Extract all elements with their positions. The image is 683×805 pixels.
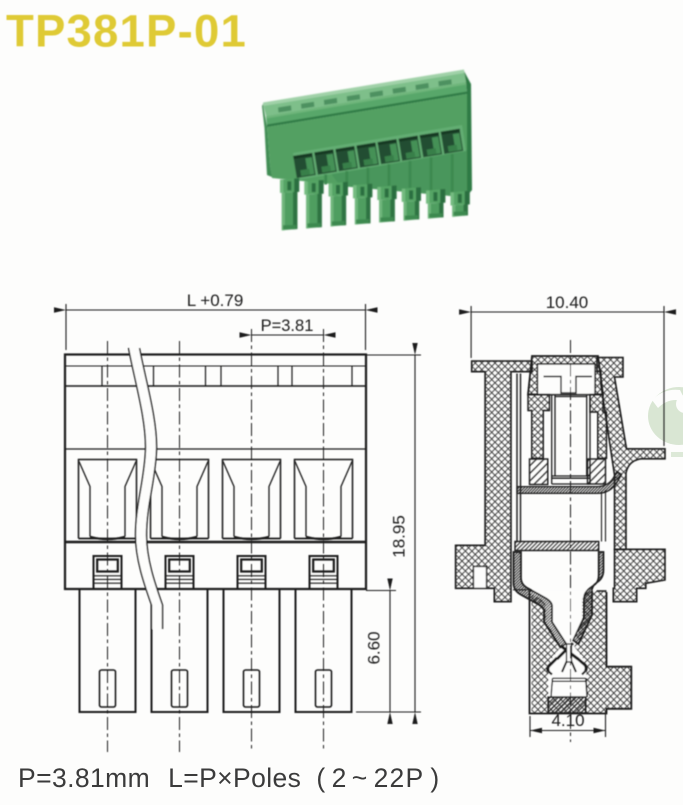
svg-text:TP381P-01: TP381P-01	[6, 6, 247, 57]
svg-text:18.95: 18.95	[390, 515, 409, 558]
svg-text:P=3.81mmL=P×Poles(2~22P): P=3.81mmL=P×Poles(2~22P)	[18, 763, 440, 793]
svg-text:6.60: 6.60	[365, 631, 384, 664]
svg-text:P=3.81: P=3.81	[261, 317, 314, 335]
svg-text:L +0.79: L +0.79	[187, 291, 244, 310]
svg-text:4.10: 4.10	[551, 711, 584, 730]
svg-text:10.40: 10.40	[546, 293, 589, 312]
